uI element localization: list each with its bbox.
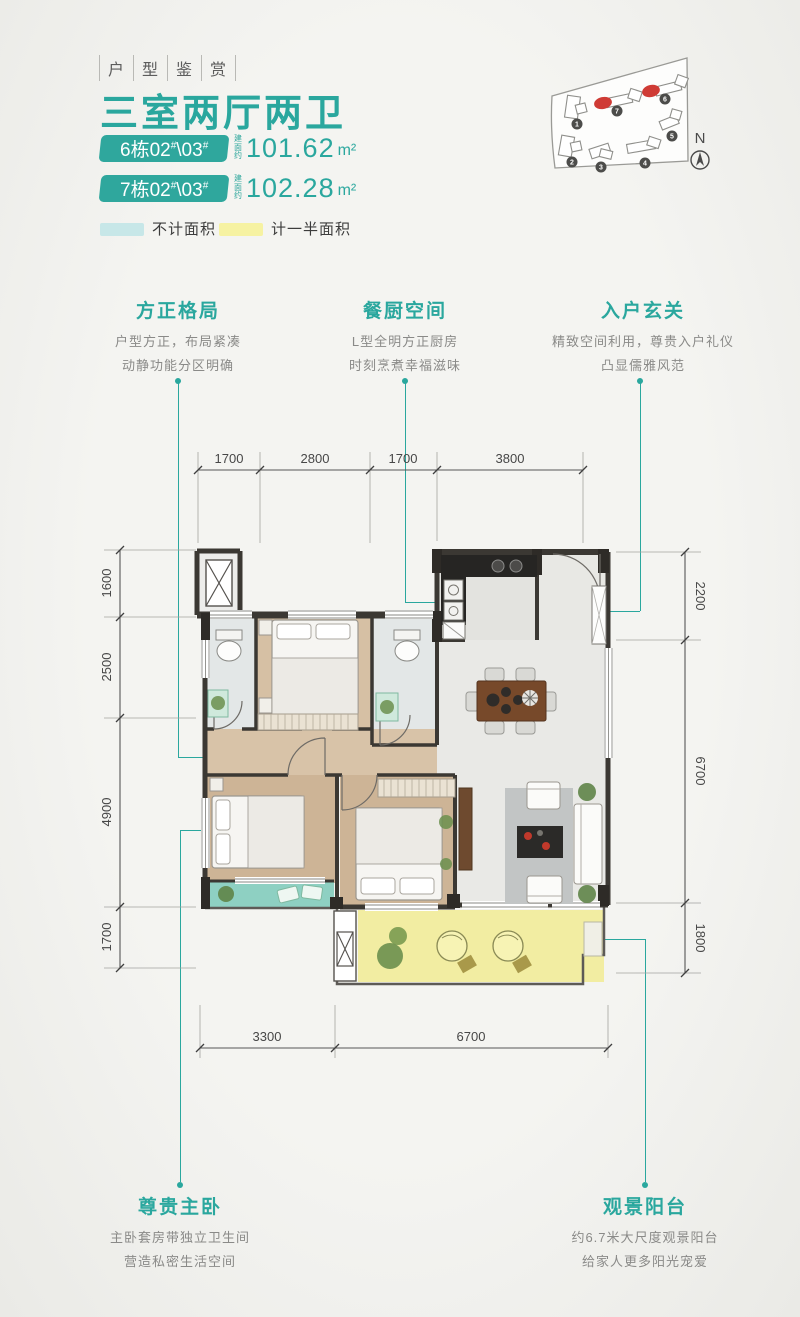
dim-left-3: 1700 bbox=[99, 923, 114, 952]
legend-swatch-half-area bbox=[219, 223, 263, 236]
entry-cabinet bbox=[592, 586, 606, 644]
callout-zhuwo: 尊贵主卧 主卧套房带独立卫生间 营造私密生活空间 bbox=[65, 1192, 295, 1274]
corridor-floor bbox=[205, 729, 455, 775]
toilet-icon bbox=[394, 630, 420, 661]
svg-text:3: 3 bbox=[599, 165, 603, 172]
callout-line: 精致空间利用，尊贵入户礼仪 bbox=[528, 330, 758, 354]
leader-start-dot bbox=[642, 1182, 648, 1188]
unit-badge-7: 7栋02#\03# bbox=[99, 175, 230, 202]
callout-line: 时刻烹煮幸福滋味 bbox=[290, 354, 520, 378]
callout-line: 给家人更多阳光宠爱 bbox=[530, 1250, 760, 1274]
bed-bedroom2 bbox=[259, 620, 358, 716]
callout-line: 主卧套房带独立卫生间 bbox=[65, 1226, 295, 1250]
dim-left-2: 4900 bbox=[99, 798, 114, 827]
callout-title: 方正格局 bbox=[63, 296, 293, 323]
plant bbox=[578, 783, 596, 801]
svg-text:6: 6 bbox=[663, 97, 667, 104]
armchair bbox=[527, 876, 562, 903]
svg-text:7: 7 bbox=[615, 109, 619, 116]
dim-left-1: 2500 bbox=[99, 653, 114, 682]
floorplan-brochure-page: 户 型 鉴 赏 三室两厅两卫 6栋02#\03# 建面约 101.62 m² 7… bbox=[0, 0, 800, 1317]
callout-canchu: 餐厨空间 L型全明方正厨房 时刻烹煮幸福滋味 bbox=[290, 296, 520, 378]
dim-top-1: 2800 bbox=[301, 451, 330, 466]
wardrobe-bedroom3 bbox=[378, 779, 455, 797]
tagline-char: 鉴 bbox=[167, 55, 201, 81]
unit-badge-text: 7栋02#\03# bbox=[120, 175, 208, 202]
page-title: 三室两厅两卫 bbox=[100, 82, 346, 137]
north-compass-icon: N bbox=[691, 130, 709, 169]
tagline-char: 赏 bbox=[201, 55, 236, 81]
area-value: 101.62 bbox=[246, 133, 335, 164]
tagline-char: 型 bbox=[133, 55, 167, 81]
unit-row-6: 6栋02#\03# 建面约 101.62 m² bbox=[100, 134, 356, 162]
duct-shaft-icon bbox=[334, 911, 356, 981]
callout-yangtai: 观景阳台 约6.7米大尺度观景阳台 给家人更多阳光宠爱 bbox=[530, 1192, 760, 1274]
dim-top-3: 3800 bbox=[496, 451, 525, 466]
dim-top-0: 1700 bbox=[215, 451, 244, 466]
area-label: 建面约 bbox=[234, 175, 244, 201]
callout-title: 观景阳台 bbox=[530, 1192, 760, 1219]
toilet-icon bbox=[216, 630, 242, 661]
wardrobe-bedroom2 bbox=[258, 714, 358, 730]
unit-badge-6: 6栋02#\03# bbox=[99, 135, 230, 162]
dim-left-0: 1600 bbox=[99, 569, 114, 598]
bath-plant bbox=[380, 700, 394, 714]
svg-text:1: 1 bbox=[575, 122, 579, 129]
callout-line: 营造私密生活空间 bbox=[65, 1250, 295, 1274]
svg-text:4: 4 bbox=[643, 161, 647, 168]
dim-right-0: 2200 bbox=[693, 582, 708, 611]
callout-title: 餐厨空间 bbox=[290, 296, 520, 323]
callout-line: 动静功能分区明确 bbox=[63, 354, 293, 378]
plant bbox=[578, 885, 596, 903]
bed-bedroom3 bbox=[356, 808, 453, 900]
legend-label-excluded-area: 不计面积 bbox=[152, 218, 216, 239]
bath-plant bbox=[211, 696, 225, 710]
tagline-char: 户 bbox=[99, 55, 133, 81]
callout-line: 约6.7米大尺度观景阳台 bbox=[530, 1226, 760, 1250]
svg-text:5: 5 bbox=[670, 134, 674, 141]
callout-line: 凸显儒雅风范 bbox=[528, 354, 758, 378]
unit-badge-text: 6栋02#\03# bbox=[120, 135, 208, 162]
callout-fangzheng: 方正格局 户型方正，布局紧凑 动静功能分区明确 bbox=[63, 296, 293, 378]
dim-right-2: 1800 bbox=[693, 924, 708, 953]
callout-title: 入户玄关 bbox=[528, 296, 758, 323]
dim-bottom-1: 6700 bbox=[457, 1029, 486, 1044]
tagline: 户 型 鉴 赏 bbox=[99, 55, 236, 81]
callout-ruhu: 入户玄关 精致空间利用，尊贵入户礼仪 凸显儒雅风范 bbox=[528, 296, 758, 378]
site-plan-sketch: 1 2 3 4 5 6 7 N bbox=[540, 52, 732, 202]
area-unit: m² bbox=[338, 176, 357, 200]
area-value: 102.28 bbox=[246, 173, 335, 204]
svg-text:2: 2 bbox=[570, 160, 574, 167]
floor-plan: 1700 2800 1700 3800 1600 2500 4900 1700 … bbox=[88, 428, 733, 1093]
tv-cabinet bbox=[459, 788, 472, 870]
svg-text:N: N bbox=[695, 130, 706, 147]
legend-label-half-area: 计一半面积 bbox=[271, 218, 351, 239]
armchair bbox=[527, 782, 560, 809]
dim-top-2: 1700 bbox=[389, 451, 418, 466]
area-unit: m² bbox=[338, 136, 357, 160]
area-label: 建面约 bbox=[234, 135, 244, 161]
leader-start-dot bbox=[177, 1182, 183, 1188]
callout-line: L型全明方正厨房 bbox=[290, 330, 520, 354]
elevator-shaft-icon bbox=[206, 560, 232, 606]
legend-swatch-excluded-area bbox=[100, 223, 144, 236]
sofa bbox=[574, 804, 602, 884]
callout-line: 户型方正，布局紧凑 bbox=[63, 330, 293, 354]
dim-bottom-0: 3300 bbox=[253, 1029, 282, 1044]
callout-title: 尊贵主卧 bbox=[65, 1192, 295, 1219]
dim-right-1: 6700 bbox=[693, 757, 708, 786]
unit-row-7: 7栋02#\03# 建面约 102.28 m² bbox=[100, 174, 356, 202]
